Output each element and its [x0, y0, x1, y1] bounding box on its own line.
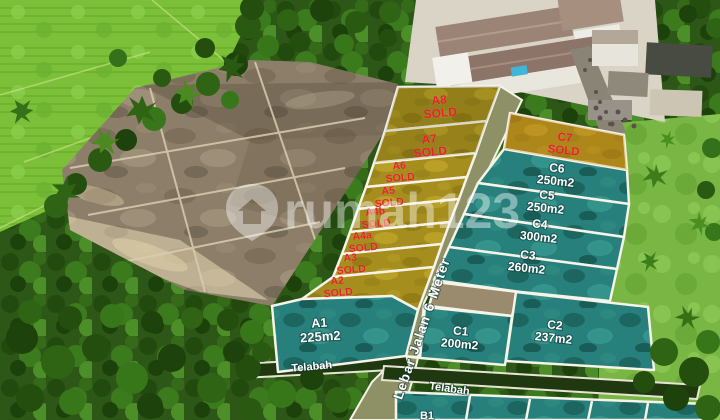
scene: A8 SOLD A7 SOLD A6 SOLD A5 SOLD A4b SOLD…	[0, 0, 720, 420]
watermark-brand: rumah123	[284, 183, 520, 239]
plot-label-b1: B1	[420, 410, 434, 420]
svg-text:225m2: 225m2	[300, 328, 341, 346]
svg-text:SOLD: SOLD	[323, 286, 354, 301]
svg-text:SOLD: SOLD	[423, 105, 458, 122]
svg-text:SOLD: SOLD	[413, 144, 448, 161]
svg-text:C7: C7	[557, 131, 573, 144]
aerial-land-plot-photo: A8 SOLD A7 SOLD A6 SOLD A5 SOLD A4b SOLD…	[0, 0, 720, 420]
